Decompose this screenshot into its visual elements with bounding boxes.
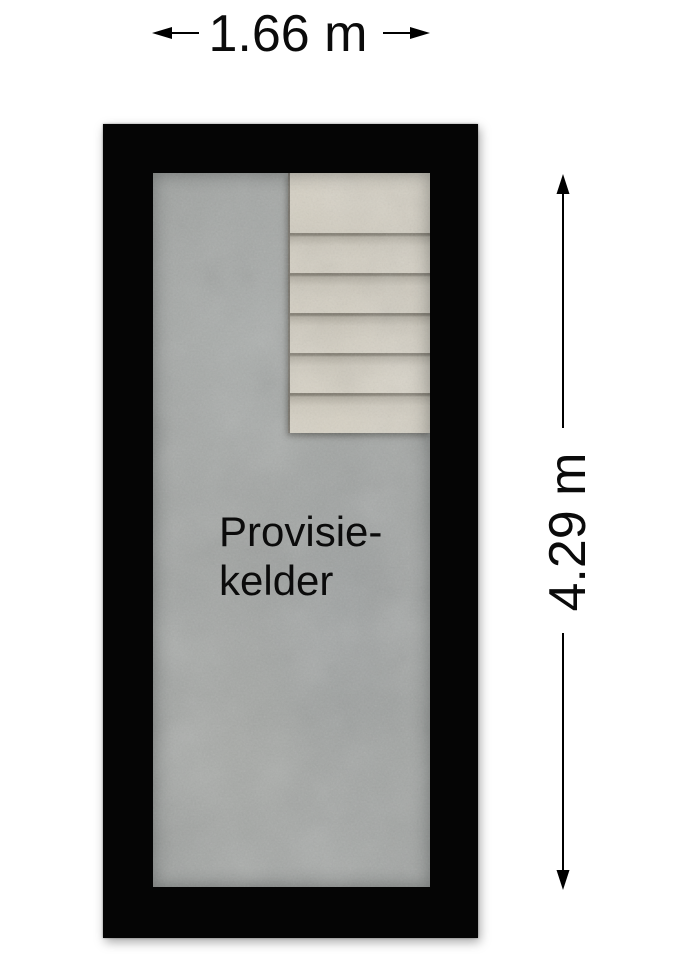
room-name-line1: Provisie- [219, 507, 382, 556]
width-dimension-label: 1.66 m [209, 8, 368, 60]
room-name: Provisie- kelder [219, 507, 382, 605]
stair-step [290, 273, 430, 313]
width-arrow-right-icon [383, 27, 430, 39]
stair-step [290, 353, 430, 393]
cellar-walls: Provisie- kelder [103, 124, 478, 938]
stairs [288, 173, 430, 433]
floorplan-canvas: 1.66 m 4.29 m [0, 0, 679, 960]
stair-step [290, 393, 430, 433]
cellar-floor: Provisie- kelder [153, 173, 430, 887]
height-dimension-label: 4.29 m [542, 453, 594, 612]
stair-step [290, 173, 430, 233]
height-arrow-up-icon [557, 174, 570, 428]
stair-step [290, 233, 430, 273]
height-arrow-down-icon [557, 633, 570, 890]
room-name-line2: kelder [219, 556, 382, 605]
width-arrow-left-icon [152, 27, 199, 39]
stair-step [290, 313, 430, 353]
